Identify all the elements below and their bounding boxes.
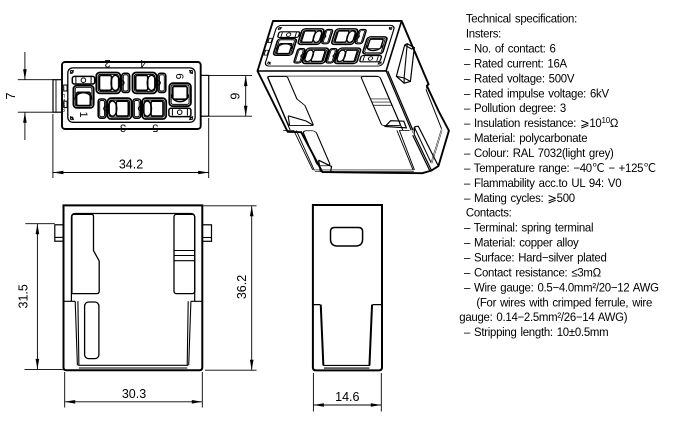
svg-text:– Insulation resistance: ⩾1010: – Insulation resistance: ⩾1010Ω (464, 115, 619, 130)
svg-text:– Surface: Hard−silver plated: – Surface: Hard−silver plated (464, 251, 607, 264)
svg-text:14.6: 14.6 (335, 390, 359, 404)
svg-text:– Flammability acc.to UL 94: V: – Flammability acc.to UL 94: V0 (464, 177, 622, 190)
svg-text:34.2: 34.2 (119, 158, 143, 172)
svg-text:– Mating cycles: ⩾500: – Mating cycles: ⩾500 (464, 192, 576, 205)
svg-text:– Contact resistance: ≤3mΩ: – Contact resistance: ≤3mΩ (464, 266, 601, 279)
svg-text:– Terminal: spring terminal: – Terminal: spring terminal (464, 221, 593, 234)
svg-text:1: 1 (77, 111, 89, 117)
svg-text:31.5: 31.5 (17, 284, 31, 308)
svg-text:– Wire gauge: 0.5−4.0mm²/20−12: – Wire gauge: 0.5−4.0mm²/20−12 AWG (464, 281, 659, 294)
svg-text:36.2: 36.2 (235, 275, 249, 299)
svg-text:0.5x1.5: 0.5x1.5 (61, 94, 67, 112)
svg-text:– Stripping length: 10±0.5mm: – Stripping length: 10±0.5mm (464, 326, 608, 339)
svg-text:Contacts:: Contacts: (466, 206, 512, 219)
svg-text:4: 4 (140, 57, 146, 69)
svg-text:gauge: 0.14−2.5mm²/26−14 AWG): gauge: 0.14−2.5mm²/26−14 AWG) (459, 311, 627, 324)
svg-text:– Rated impulse voltage: 6kV: – Rated impulse voltage: 6kV (464, 87, 609, 100)
svg-text:7: 7 (4, 92, 18, 99)
svg-text:2: 2 (104, 57, 110, 69)
svg-text:– No. of contact: 6: – No. of contact: 6 (464, 42, 556, 55)
svg-text:(For wires with crimped ferrul: (For wires with crimped ferrule, wire (476, 296, 652, 309)
svg-text:– Colour: RAL 7032(light grey): – Colour: RAL 7032(light grey) (464, 147, 614, 160)
svg-text:– Temperature range: −40℃ − +1: – Temperature range: −40℃ − +125℃ (464, 162, 656, 175)
svg-text:– Pollution degree: 3: – Pollution degree: 3 (464, 102, 566, 115)
svg-text:6: 6 (173, 73, 185, 79)
svg-text:Insters:: Insters: (466, 27, 501, 40)
svg-text:– Material: polycarbonate: – Material: polycarbonate (464, 132, 587, 145)
svg-text:3: 3 (120, 121, 126, 133)
svg-text:9: 9 (229, 93, 243, 100)
svg-text:5: 5 (152, 121, 158, 133)
svg-text:– Material: copper alloy: – Material: copper alloy (464, 236, 579, 249)
svg-text:Technical specification:: Technical specification: (466, 12, 577, 25)
svg-text:– Rated voltage: 500V: – Rated voltage: 500V (464, 72, 575, 85)
svg-text:30.3: 30.3 (122, 387, 146, 401)
svg-text:– Rated current: 16A: – Rated current: 16A (464, 57, 567, 70)
